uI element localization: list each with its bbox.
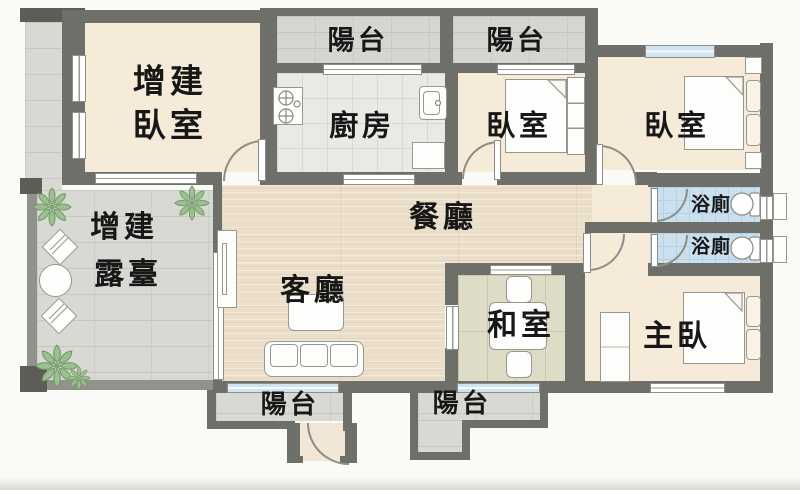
dining-floor (222, 185, 592, 263)
sliding-door (343, 174, 415, 185)
pillow (746, 296, 761, 327)
window (95, 173, 197, 184)
wall (440, 8, 598, 16)
wall (585, 222, 657, 233)
sofa-cushion (300, 344, 328, 367)
sofa-cushion (330, 344, 358, 367)
door-panel (651, 188, 658, 223)
terrace-walkway-floor (25, 22, 62, 190)
balcony-top-kitchen-label: 陽台 (327, 28, 388, 55)
balcony-bottom-entry-label: 陽台 (261, 392, 320, 418)
terrace-table (39, 264, 72, 297)
wall (462, 420, 548, 428)
wall (565, 263, 585, 393)
terrace-wall (27, 380, 213, 390)
dining-label: 餐廳 (409, 203, 477, 233)
wall (648, 173, 773, 187)
door-panel (494, 140, 501, 180)
living-label: 客廳 (280, 276, 348, 306)
bathroom-lower-label: 浴廁 (691, 238, 731, 257)
bedroom-middle-label: 臥室 (486, 112, 552, 141)
tv (222, 243, 227, 295)
terrace-wall (27, 185, 37, 390)
tatami-sliding-door (446, 306, 459, 350)
floor-plan: 增建 臥室 增建 露臺 陽台 陽台 廚房 臥室 臥室 餐廳 客廳 和室 主臥 浴… (0, 0, 800, 490)
nightstand (745, 152, 762, 169)
stove (273, 87, 303, 125)
window-sill (773, 193, 787, 220)
wall (648, 263, 773, 276)
bedroom-right-label: 臥室 (644, 112, 710, 141)
sliding-window (323, 64, 422, 75)
wall (540, 383, 548, 428)
wall (648, 222, 773, 233)
door-panel (258, 139, 266, 181)
annex-bedroom-label-line1: 增建 (133, 65, 208, 98)
floor-cushion (506, 351, 532, 378)
window (645, 45, 715, 58)
balcony-top-bedroom-label: 陽台 (486, 28, 547, 55)
window (650, 383, 725, 393)
wall (207, 421, 295, 429)
wardrobe (567, 77, 585, 155)
door-panel (651, 234, 658, 267)
annex-bedroom-label-line2: 臥室 (133, 109, 208, 142)
annex-terrace-label-line1: 增建 (90, 213, 158, 243)
pillow (746, 114, 761, 146)
bathroom-upper-label: 浴廁 (691, 196, 731, 215)
balcony-bottom-tatami-label: 陽台 (433, 391, 492, 417)
window-sill (773, 236, 787, 263)
wall (62, 10, 272, 23)
annex-terrace-label-line2: 露臺 (94, 260, 162, 290)
bathroom-window (760, 239, 773, 263)
sink-basin (423, 91, 440, 115)
wall (497, 172, 598, 185)
pillow (746, 80, 761, 112)
balcony-tatami-floor-ext (418, 420, 462, 452)
terrace-post (20, 366, 47, 392)
tatami-room-label: 和室 (487, 311, 555, 341)
door-panel (583, 233, 591, 273)
corridor-floor (592, 185, 650, 222)
master-bedroom-label: 主臥 (643, 322, 711, 352)
kitchen-cabinet (412, 142, 445, 169)
wall (287, 456, 303, 463)
wall (445, 172, 462, 185)
nightstand (745, 57, 762, 74)
bottom-shadow (0, 477, 800, 490)
sliding-window (490, 265, 552, 275)
tv-cabinet (217, 230, 237, 308)
wall (410, 383, 418, 460)
closet (600, 312, 630, 382)
window (72, 112, 86, 159)
sliding-window (497, 64, 575, 75)
sofa-cushion (270, 344, 298, 367)
wall (260, 8, 453, 16)
floor-cushion (506, 276, 532, 303)
wall (410, 452, 470, 460)
door-panel (596, 144, 603, 185)
kitchen-label: 廚房 (329, 112, 395, 141)
pillow (746, 329, 761, 360)
window (72, 55, 86, 102)
bathroom-window (760, 196, 773, 220)
terrace-post (20, 178, 42, 194)
